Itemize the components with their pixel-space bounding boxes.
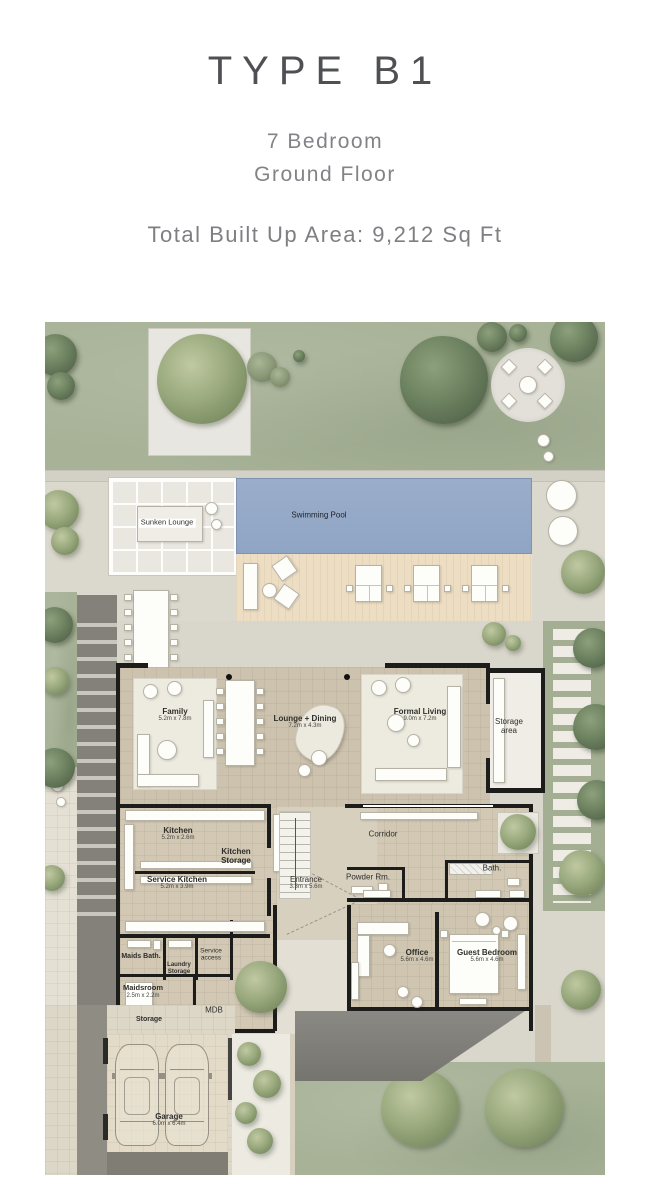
guest-chair: [397, 986, 409, 998]
chair: [216, 688, 224, 695]
chair: [124, 609, 132, 616]
chair: [124, 654, 132, 661]
subtitle-bedrooms: 7 Bedroom: [0, 130, 650, 154]
floor-plan: Sunken Lounge Swimming Pool Family5.2m x…: [45, 322, 605, 1175]
kitchen-counter: [125, 810, 265, 821]
car: [165, 1044, 209, 1146]
desk: [357, 922, 409, 935]
room-label-swimming-pool: Swimming Pool: [291, 510, 346, 519]
sink: [363, 890, 391, 898]
sun-lounger: [243, 563, 258, 610]
bench: [459, 998, 487, 1005]
tv-unit: [203, 700, 214, 758]
side-table: [444, 585, 451, 592]
outdoor-dining-table: [133, 590, 169, 670]
tree: [253, 1070, 281, 1098]
patio-chair: [537, 359, 554, 376]
armchair: [395, 677, 411, 693]
tree: [485, 1069, 563, 1147]
page: { "header": { "title": "TYPE B1", "subti…: [0, 0, 650, 1200]
swimming-pool: [236, 478, 532, 554]
patio-chair: [537, 393, 554, 410]
armchair: [143, 684, 158, 699]
chair: [256, 703, 264, 710]
pouf: [298, 764, 311, 777]
pot: [56, 797, 66, 807]
chair: [170, 639, 178, 646]
chair: [124, 639, 132, 646]
subtitle-floor: Ground Floor: [0, 163, 650, 187]
coffee-table: [157, 740, 177, 760]
room-label-kitchen-storage: Kitchen Storage: [219, 847, 253, 865]
armchair: [371, 680, 387, 696]
tree: [235, 1102, 257, 1124]
tree: [400, 336, 488, 424]
dining-table: [225, 680, 255, 766]
armchair: [475, 912, 490, 927]
side-table: [502, 585, 509, 592]
guest-chair: [411, 996, 423, 1008]
laundry-unit: [168, 940, 192, 948]
car: [115, 1044, 159, 1146]
chair: [170, 654, 178, 661]
cushion: [205, 502, 218, 515]
room-label-kitchen: Kitchen5.2m x 2.6m: [161, 826, 194, 842]
tree: [270, 367, 290, 387]
chair: [124, 594, 132, 601]
sofa: [447, 686, 461, 768]
room-label-guest-bedroom: Guest Bedroom5.6m x 4.6m: [457, 948, 517, 964]
planter: [546, 480, 577, 511]
room-label-sunken-lounge: Sunken Lounge: [139, 519, 196, 528]
sink: [475, 890, 501, 898]
service-counter: [125, 921, 265, 932]
page-title: TYPE B1: [0, 49, 650, 94]
room-label-service-kitchen: Service Kitchen5.2m x 3.9m: [147, 875, 207, 891]
seating-patio: [491, 348, 565, 422]
room-label-laundry-storage: Laundry Storage: [164, 962, 194, 976]
office-chair: [383, 944, 396, 957]
sink: [507, 878, 520, 886]
tree: [237, 1042, 261, 1066]
chair: [216, 733, 224, 740]
sun-bed: [355, 565, 382, 602]
room-label-storage-area: Storage area: [492, 717, 526, 735]
tree: [47, 372, 75, 400]
room-label-family: Family5.2m x 7.8m: [158, 707, 191, 723]
patio-chair: [501, 393, 518, 410]
chair: [216, 748, 224, 755]
chair: [124, 624, 132, 631]
room-label-maids-bath: Maids Bath.: [121, 953, 160, 961]
room-label-garage: Garage6.0m x 6.4m: [152, 1112, 185, 1128]
chair: [256, 748, 264, 755]
room-label-mdb: MDB: [205, 1005, 223, 1014]
chair: [170, 624, 178, 631]
tree: [293, 350, 305, 362]
cabinet: [351, 962, 359, 1000]
tree: [573, 628, 605, 668]
room-label-bath: Bath.: [483, 863, 502, 872]
patio-chair: [501, 359, 518, 376]
side-table: [407, 734, 420, 747]
pebble: [537, 434, 550, 447]
nightstand: [501, 930, 509, 938]
front-path: [535, 1005, 551, 1062]
patio-table: [519, 376, 537, 394]
room-label-entrance: Entrance3.3m x 5.6m: [289, 875, 322, 891]
sun-bed: [413, 565, 440, 602]
cushion: [211, 519, 222, 530]
tree: [482, 622, 506, 646]
chair: [216, 703, 224, 710]
pebble: [543, 451, 554, 462]
tree: [51, 527, 79, 555]
side-table: [404, 585, 411, 592]
tree: [559, 850, 605, 896]
room-label-powder-rm: Powder Rm.: [346, 872, 390, 881]
wardrobe: [517, 934, 526, 990]
chair: [216, 718, 224, 725]
room-label-office: Office5.6m x 4.6m: [400, 948, 433, 964]
sun-bed: [471, 565, 498, 602]
room-label-maidsroom: Maidsroom2.5m x 2.2m: [123, 984, 163, 1000]
planter: [548, 516, 578, 546]
room-label-formal-living: Formal Living9.0m x 7.2m: [394, 707, 446, 723]
pergola-walkway: [77, 595, 117, 1005]
chair: [256, 733, 264, 740]
wc: [153, 940, 161, 950]
sink: [509, 890, 525, 898]
sofa: [375, 768, 447, 781]
side-table: [386, 585, 393, 592]
tree: [247, 1128, 273, 1154]
sink: [127, 940, 151, 948]
chair: [256, 688, 264, 695]
kitchen-counter: [124, 824, 134, 890]
armchair: [167, 681, 182, 696]
tree: [509, 324, 527, 342]
sofa: [137, 774, 199, 787]
tree: [561, 970, 601, 1010]
side-table: [346, 585, 353, 592]
chair: [170, 609, 178, 616]
console: [360, 812, 478, 820]
chair: [256, 718, 264, 725]
side-table: [462, 585, 469, 592]
nightstand: [440, 930, 448, 938]
tree: [157, 334, 247, 424]
driveway: [77, 1005, 107, 1175]
armchair: [503, 916, 518, 931]
tree: [505, 635, 521, 651]
tree: [235, 961, 287, 1013]
room-label-service-access: Service access: [196, 948, 226, 963]
room-label-lounge-dining: Lounge + Dining7.2m x 4.3m: [274, 714, 337, 730]
built-up-area-text: Total Built Up Area: 9,212 Sq Ft: [0, 222, 650, 248]
pouf: [311, 750, 327, 766]
room-label-corridor: Corridor: [369, 829, 398, 838]
tree: [561, 550, 605, 594]
room-label-storage: Storage: [136, 1016, 162, 1024]
tree: [500, 814, 536, 850]
tree: [477, 322, 507, 352]
chair: [170, 594, 178, 601]
